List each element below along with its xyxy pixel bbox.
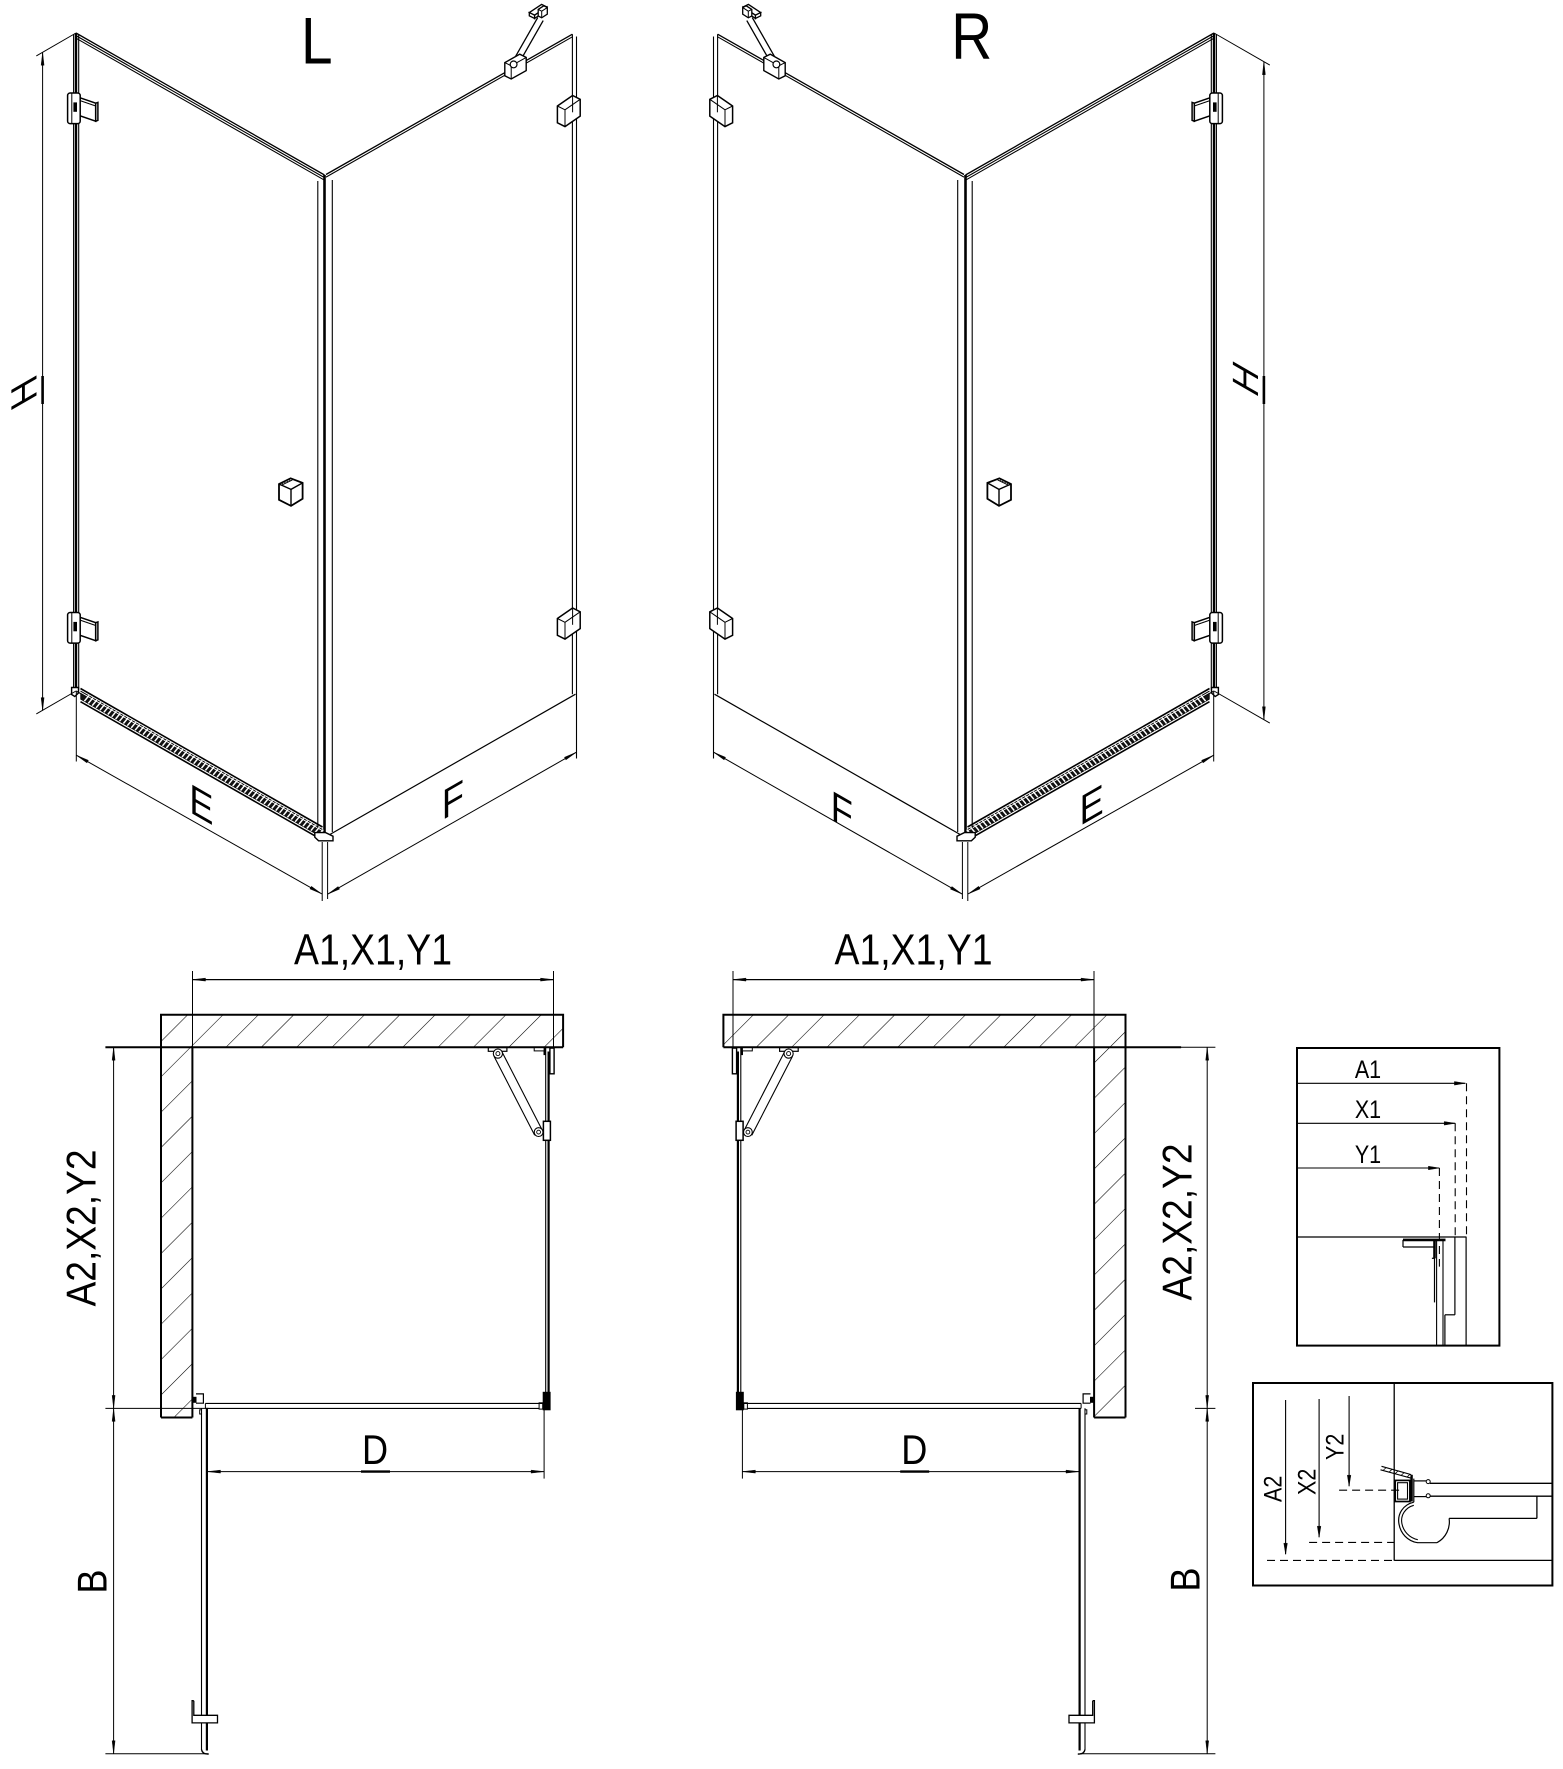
svg-text:X2: X2	[1294, 1469, 1322, 1495]
svg-text:A2: A2	[1260, 1476, 1288, 1502]
svg-text:A1: A1	[1355, 1056, 1381, 1084]
svg-text:A2,X2,Y2: A2,X2,Y2	[1154, 1144, 1201, 1301]
svg-text:D: D	[901, 1428, 927, 1474]
svg-text:L: L	[301, 4, 333, 78]
svg-text:D: D	[362, 1428, 388, 1474]
svg-text:B: B	[1163, 1568, 1209, 1592]
svg-text:X1: X1	[1355, 1096, 1381, 1124]
svg-text:Y1: Y1	[1355, 1141, 1381, 1169]
svg-text:A1,X1,Y1: A1,X1,Y1	[294, 927, 452, 975]
svg-text:Y2: Y2	[1322, 1434, 1350, 1460]
svg-text:A1,X1,Y1: A1,X1,Y1	[835, 927, 993, 975]
svg-text:R: R	[951, 0, 992, 74]
svg-text:A2,X2,Y2: A2,X2,Y2	[58, 1150, 105, 1307]
svg-text:B: B	[70, 1570, 116, 1594]
